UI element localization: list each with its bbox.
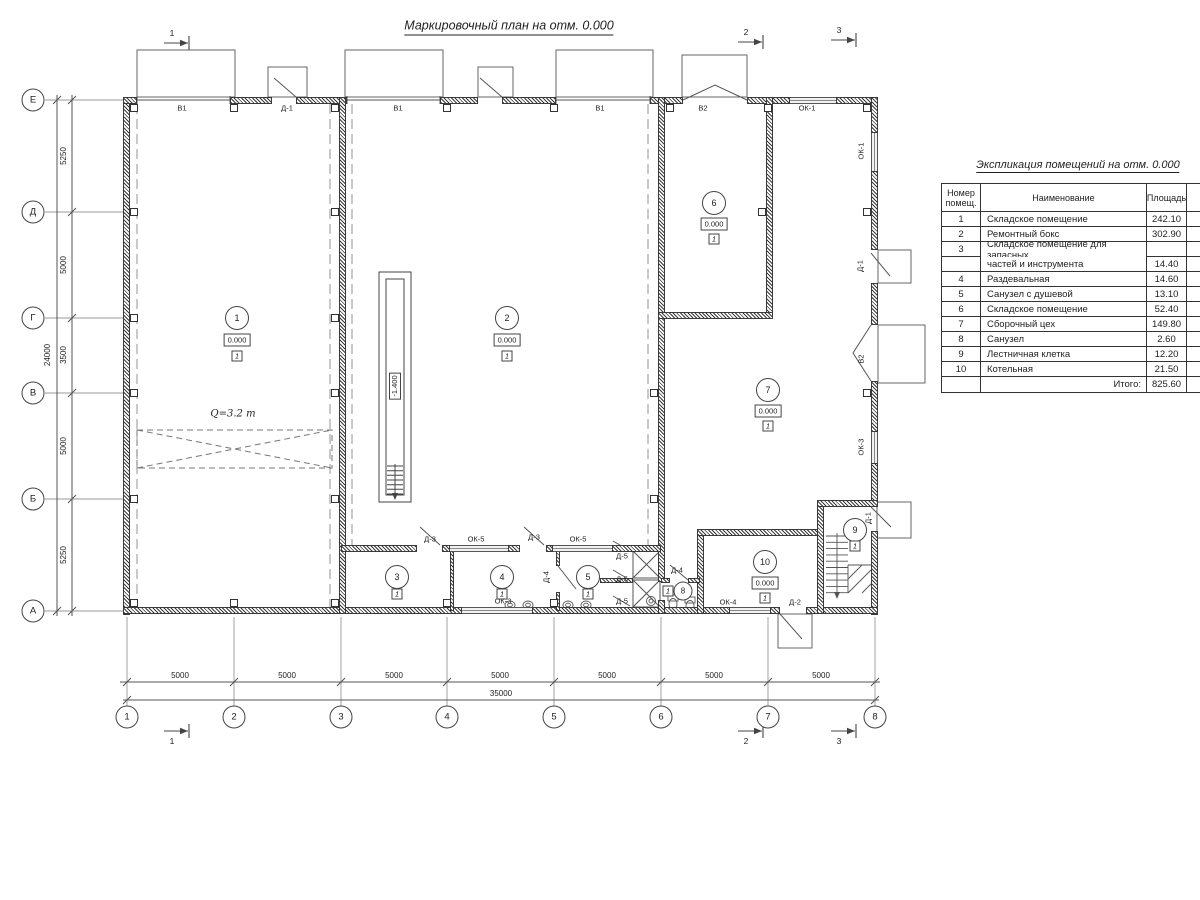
floor-type-6: 1 (709, 234, 720, 245)
column-marker (666, 104, 674, 112)
room-number-9: 9 (843, 518, 867, 542)
wall-rooms345-top (508, 545, 520, 552)
window-ok3-right (871, 432, 878, 463)
table-cell-area: 14.60 (1147, 272, 1187, 287)
wall-room1-room2 (339, 97, 346, 614)
table-cell-area: 14.40 (1147, 257, 1187, 272)
table-cell-area: 52.40 (1147, 302, 1187, 317)
gate-mark-v2: В2 (698, 104, 707, 112)
table-header-area: Площадь (1147, 184, 1187, 212)
wall-room8-top (661, 578, 670, 583)
table-cell-name: Санузел с душевой (981, 287, 1147, 302)
door-mark-d5: Д-5 (616, 552, 628, 560)
wall-bottom (770, 607, 780, 614)
wall-room8-top (688, 578, 700, 583)
table-cell-name: Раздевальная (981, 272, 1147, 287)
table-cell-category (1187, 377, 1200, 392)
room-number-8: 8 (674, 582, 693, 601)
table-cell-num: 5 (942, 287, 981, 302)
door-mark-d3: Д-3 (424, 535, 436, 543)
table-header-category: Ка по (1187, 184, 1200, 212)
table-cell-area: 21.50 (1147, 362, 1187, 377)
table-cell-category (1187, 212, 1200, 227)
floor-type-2: 1 (502, 351, 513, 362)
wall-right (871, 97, 878, 133)
wall-top (502, 97, 556, 104)
wall-rooms345-top (546, 545, 553, 552)
axis-bubble-4: 4 (436, 706, 459, 729)
column-marker (130, 104, 138, 112)
axis-bubble-3: 3 (330, 706, 353, 729)
column-marker (331, 104, 339, 112)
table-total-value: 825.60 (1147, 377, 1187, 392)
door-mark-d1: Д-1 (281, 104, 293, 112)
table-cell-num: 10 (942, 362, 981, 377)
wall-room10-top (697, 529, 824, 536)
column-marker (331, 208, 339, 216)
table-cell-category (1187, 272, 1200, 287)
column-marker (331, 389, 339, 397)
room-number-4: 4 (490, 565, 514, 589)
table-cell-num: 4 (942, 272, 981, 287)
room-schedule-table: Номер помещ. Наименование Площадь Ка по … (941, 183, 1200, 393)
table-cell-name: Складское помещение для запасных (981, 242, 1147, 257)
gate-mark-v1: В1 (393, 104, 402, 112)
axis-bubble-e: Е (22, 89, 45, 112)
floor-type-8: 1 (663, 586, 674, 597)
axis-bubble-b: Б (22, 488, 45, 511)
window-ok1-right (871, 133, 878, 171)
wall-top (650, 97, 683, 104)
wall-top (230, 97, 272, 104)
column-marker (550, 104, 558, 112)
axis-bubble-8: 8 (864, 706, 887, 729)
table-cell-num: 1 (942, 212, 981, 227)
window-mark-ok1: ОК-1 (857, 143, 865, 160)
room-number-2: 2 (495, 306, 519, 330)
room-elevation-6: 0.000 (701, 218, 728, 231)
axis-bubble-d: Д (22, 201, 45, 224)
column-marker (758, 208, 766, 216)
table-header-number: Номер помещ. (942, 184, 981, 212)
section-mark-2-bottom: 2 (744, 737, 749, 746)
door-mark-d1: Д-1 (856, 260, 864, 272)
table-cell-category (1187, 242, 1200, 257)
table-cell-name: Складское помещение (981, 212, 1147, 227)
table-cell-name: Сборочный цех (981, 317, 1147, 332)
wall-rooms345-top (341, 545, 417, 552)
axis-bubble-2: 2 (223, 706, 246, 729)
wall-right (871, 531, 878, 615)
column-marker (331, 495, 339, 503)
room-elevation-10: 0.000 (752, 577, 779, 590)
table-cell-name: Лестничная клетка (981, 347, 1147, 362)
axis-bubble-g: Г (22, 307, 45, 330)
wall-top (123, 97, 137, 104)
wall-room6-right (766, 97, 773, 319)
column-marker (230, 599, 238, 607)
table-cell-num: 3 (942, 242, 981, 257)
axis-bubble-v: В (22, 382, 45, 405)
table-header-name: Наименование (981, 184, 1147, 212)
table-total-label: Итого: (981, 377, 1147, 392)
dim-bottom-total: 35000 (490, 690, 512, 698)
dim-left-1: 5250 (60, 147, 68, 165)
column-marker (443, 104, 451, 112)
window-mark-ok5: ОК-5 (570, 535, 587, 543)
wall-right (871, 171, 878, 250)
axis-bubble-7: 7 (757, 706, 780, 729)
table-cell-num: 8 (942, 332, 981, 347)
floor-type-1: 1 (232, 351, 243, 362)
floor-type-3: 1 (392, 589, 403, 600)
table-cell-category (1187, 257, 1200, 272)
floor-type-5: 1 (583, 589, 594, 600)
floor-type-10: 1 (760, 593, 771, 604)
table-cell-num: 7 (942, 317, 981, 332)
column-marker (443, 599, 451, 607)
table-cell-num: 9 (942, 347, 981, 362)
column-marker (764, 104, 772, 112)
room-number-3: 3 (385, 565, 409, 589)
wall-axis6 (658, 97, 665, 582)
wall-right (871, 283, 878, 325)
section-mark-3-top: 3 (837, 26, 842, 35)
window-ok5 (450, 545, 508, 552)
room-number-10: 10 (753, 550, 777, 574)
room-number-6: 6 (702, 191, 726, 215)
door-mark-d1: Д-1 (864, 512, 872, 524)
wall-rooms345-top (442, 545, 450, 552)
window-ok4 (730, 607, 770, 614)
floor-type-4: 1 (497, 589, 508, 600)
dim-bottom-4: 5000 (491, 672, 509, 680)
room-elevation-7: 0.000 (755, 405, 782, 418)
room-elevation-2: 0.000 (494, 334, 521, 347)
window-mark-ok1: ОК-1 (799, 104, 816, 112)
blueprint-canvas: Маркировочный план на отм. 0.000 Эксплик… (0, 0, 1200, 900)
table-cell-category (1187, 362, 1200, 377)
room-number-5: 5 (576, 565, 600, 589)
table-cell-area (1147, 242, 1187, 257)
room-number-1: 1 (225, 306, 249, 330)
floor-type-9: 1 (850, 541, 861, 552)
table-cell-area: 2.60 (1147, 332, 1187, 347)
column-marker (331, 314, 339, 322)
axis-bubble-1: 1 (116, 706, 139, 729)
wall-room10-left (697, 529, 704, 614)
gate-mark-v1: В1 (595, 104, 604, 112)
wall-left (123, 97, 130, 615)
wall-top (440, 97, 478, 104)
door-mark-d5: Д-5 (616, 575, 628, 583)
table-cell-category (1187, 347, 1200, 362)
table-cell-name: частей и инструмента (981, 257, 1147, 272)
table-cell-area: 242.10 (1147, 212, 1187, 227)
dim-bottom-7: 5000 (812, 672, 830, 680)
wall-axis6 (658, 600, 665, 614)
axis-bubble-a: А (22, 600, 45, 623)
pit-elevation-label: -1.400 (389, 372, 401, 399)
table-cell-area: 12.20 (1147, 347, 1187, 362)
column-marker (863, 104, 871, 112)
column-marker (130, 599, 138, 607)
dim-left-4: 5000 (60, 437, 68, 455)
table-cell-num: 6 (942, 302, 981, 317)
dim-bottom-2: 5000 (278, 672, 296, 680)
wall-right (871, 381, 878, 432)
table-cell-category (1187, 287, 1200, 302)
window-ok3-bottom (462, 607, 532, 614)
axis-bubble-6: 6 (650, 706, 673, 729)
room-elevation-1: 0.000 (224, 334, 251, 347)
window-mark-ok4: ОК-4 (720, 598, 737, 606)
table-cell-area: 149.80 (1147, 317, 1187, 332)
wall-stair-left (817, 500, 824, 614)
gate-mark-v1: В1 (177, 104, 186, 112)
table-cell-num (942, 257, 981, 272)
column-marker (230, 104, 238, 112)
column-marker (130, 208, 138, 216)
section-mark-2-top: 2 (744, 28, 749, 37)
door-mark-d3: Д-3 (528, 533, 540, 541)
floor-type-7: 1 (763, 421, 774, 432)
column-marker (331, 599, 339, 607)
window-mark-ok5: ОК-5 (468, 535, 485, 543)
dim-left-5: 5250 (60, 546, 68, 564)
wall-stair-top (817, 500, 878, 507)
section-mark-1-top: 1 (170, 29, 175, 38)
door-mark-d4: Д-4 (542, 571, 550, 583)
column-marker (130, 495, 138, 503)
wall-bottom (123, 607, 462, 614)
dim-bottom-6: 5000 (705, 672, 723, 680)
door-mark-d4: Д-4 (671, 566, 683, 574)
column-marker (650, 389, 658, 397)
table-cell-num: 2 (942, 227, 981, 242)
column-marker (863, 208, 871, 216)
column-marker (130, 389, 138, 397)
dim-left-2: 5000 (60, 256, 68, 274)
table-cell-name: Ремонтный бокс (981, 227, 1147, 242)
wall-room6-bottom (658, 312, 773, 319)
dim-bottom-5: 5000 (598, 672, 616, 680)
table-cell-name: Санузел (981, 332, 1147, 347)
table-cell-area: 13.10 (1147, 287, 1187, 302)
crane-capacity-label: Q=3.2 т (210, 409, 255, 420)
plan-title: Маркировочный план на отм. 0.000 (404, 19, 613, 36)
table-cell-category (1187, 227, 1200, 242)
table-cell-category (1187, 302, 1200, 317)
dim-left-3: 3500 (60, 346, 68, 364)
table-cell-category (1187, 317, 1200, 332)
table-cell-name: Котельная (981, 362, 1147, 377)
dim-bottom-3: 5000 (385, 672, 403, 680)
table-title: Экспликация помещений на отм. 0.000 (976, 159, 1179, 173)
window-mark-ok3: ОК-3 (857, 439, 865, 456)
table-cell-area: 302.90 (1147, 227, 1187, 242)
plan-linework (0, 0, 1200, 900)
door-mark-d2: Д-2 (789, 598, 801, 606)
door-mark-d5: Д-5 (616, 597, 628, 605)
section-mark-3-bottom: 3 (837, 737, 842, 746)
dim-left-total: 24000 (44, 344, 52, 366)
gate-mark-v2: В2 (857, 354, 865, 363)
table-cell-num (942, 377, 981, 392)
column-marker (650, 495, 658, 503)
column-marker (130, 314, 138, 322)
room-number-7: 7 (756, 378, 780, 402)
table-cell-name: Складское помещение (981, 302, 1147, 317)
window-ok5 (553, 545, 612, 552)
axis-bubble-5: 5 (543, 706, 566, 729)
column-marker (863, 389, 871, 397)
table-cell-category (1187, 332, 1200, 347)
column-marker (550, 599, 558, 607)
dim-bottom-1: 5000 (171, 672, 189, 680)
section-mark-1-bottom: 1 (170, 737, 175, 746)
